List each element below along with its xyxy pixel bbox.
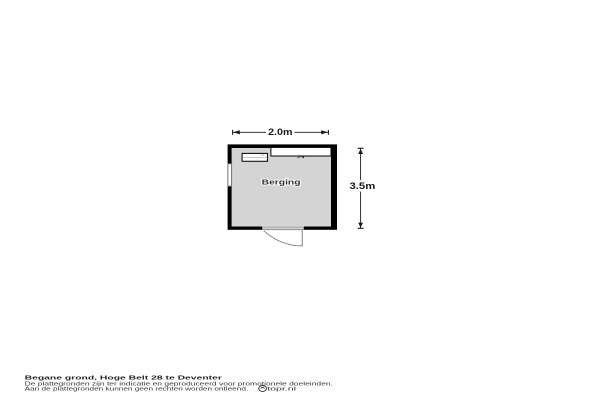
svg-text:Aan de plattegronden kunnen ge: Aan de plattegronden kunnen geen rechten… [25, 387, 249, 393]
svg-text:3.5m: 3.5m [350, 181, 376, 192]
svg-text:Berging: Berging [262, 177, 301, 186]
svg-text:topr.nl: topr.nl [267, 387, 296, 393]
svg-text:2.0m: 2.0m [268, 127, 292, 138]
